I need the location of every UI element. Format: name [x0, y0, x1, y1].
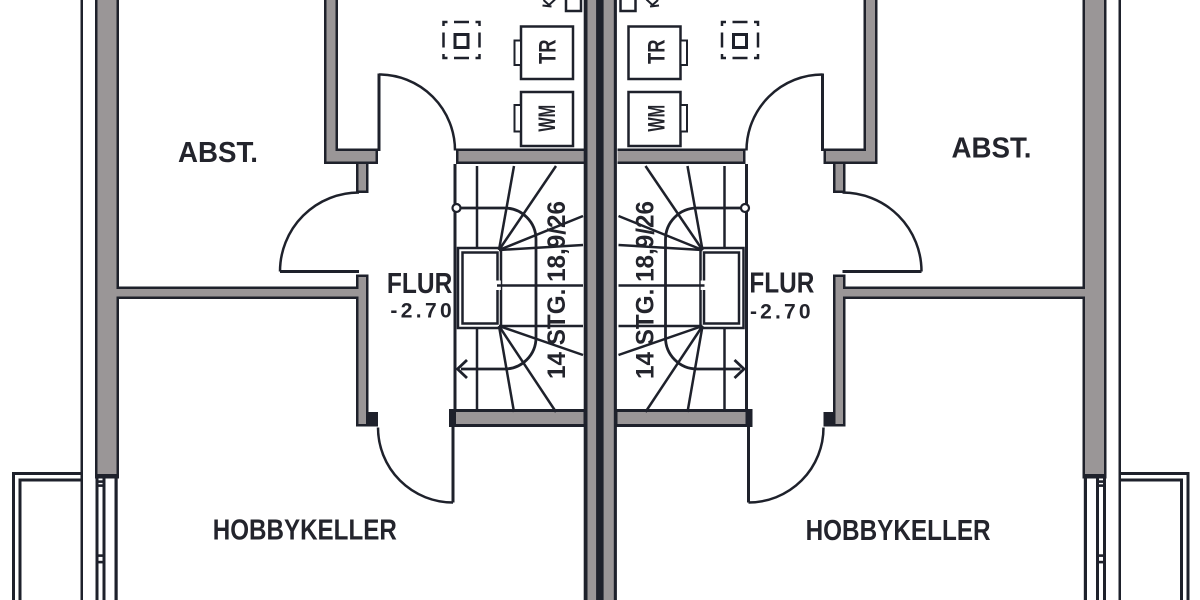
svg-text:WM: WM: [534, 105, 561, 132]
svg-text:ABST.: ABST.: [952, 133, 1032, 165]
svg-text:14 STG. 18,9/26: 14 STG. 18,9/26: [631, 201, 659, 379]
svg-text:TR: TR: [534, 40, 561, 65]
svg-text:HOBBYKELLER: HOBBYKELLER: [806, 515, 991, 547]
svg-text:14 STG. 18,9/26: 14 STG. 18,9/26: [543, 201, 571, 379]
svg-text:TR: TR: [644, 40, 671, 65]
svg-text:WM: WM: [644, 105, 671, 132]
svg-text:HOBBYKELLER: HOBBYKELLER: [213, 514, 397, 546]
svg-text:ABST.: ABST.: [178, 137, 258, 169]
svg-text:FLUR: FLUR: [749, 268, 814, 300]
svg-text:FLUR: FLUR: [387, 268, 452, 300]
